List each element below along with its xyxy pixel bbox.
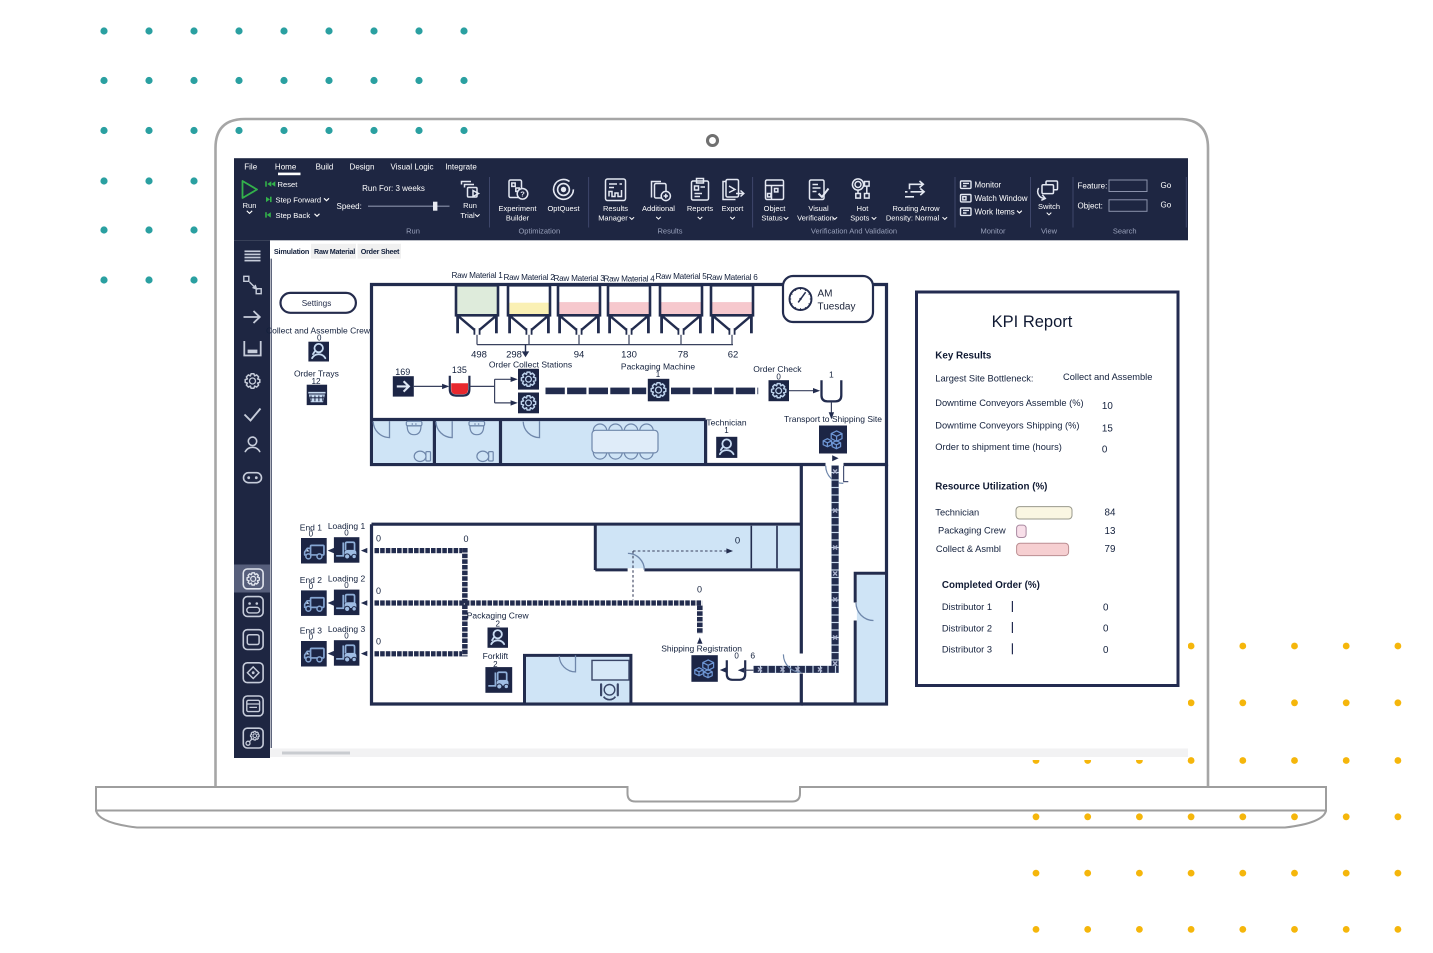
svg-text:Shipping Registration: Shipping Registration — [661, 644, 742, 654]
svg-text:KPI Report: KPI Report — [992, 313, 1073, 331]
svg-text:0: 0 — [735, 536, 740, 547]
svg-text:Packaging Crew: Packaging Crew — [938, 526, 1006, 536]
svg-text:12: 12 — [311, 377, 321, 386]
svg-text:135: 135 — [452, 365, 467, 375]
svg-text:10: 10 — [1102, 401, 1113, 412]
svg-text:0: 0 — [317, 333, 322, 342]
svg-text:Trial: Trial — [460, 211, 475, 220]
svg-text:Export: Export — [722, 204, 745, 213]
svg-text:Raw Material 4: Raw Material 4 — [603, 275, 655, 284]
svg-text:79: 79 — [1105, 544, 1116, 555]
svg-text:Visual Logic: Visual Logic — [391, 162, 434, 171]
svg-text:13: 13 — [1105, 526, 1116, 537]
svg-text:Builder: Builder — [506, 214, 530, 223]
svg-text:Raw Material 3: Raw Material 3 — [553, 274, 605, 283]
svg-text:Largest Site Bottleneck:: Largest Site Bottleneck: — [935, 373, 1033, 383]
svg-text:Distributor 3: Distributor 3 — [942, 645, 992, 655]
svg-text:0: 0 — [309, 633, 314, 642]
svg-text:62: 62 — [728, 350, 739, 361]
svg-text:Raw Material 1: Raw Material 1 — [451, 271, 503, 280]
svg-text:Monitor: Monitor — [975, 180, 1002, 189]
svg-text:0: 0 — [463, 534, 468, 544]
svg-text:Simulation: Simulation — [274, 247, 309, 256]
svg-text:Results: Results — [657, 226, 682, 235]
svg-text:Go: Go — [1161, 181, 1172, 190]
svg-text:View: View — [1041, 226, 1058, 235]
svg-text:Reports: Reports — [687, 204, 714, 213]
svg-text:Order to shipment time (hours): Order to shipment time (hours) — [935, 442, 1062, 452]
svg-text:0: 0 — [344, 581, 349, 590]
svg-text:130: 130 — [621, 350, 637, 361]
svg-text:Run For: 3 weeks: Run For: 3 weeks — [362, 184, 425, 193]
svg-text:Manager: Manager — [598, 214, 628, 223]
svg-text:Work Items: Work Items — [975, 207, 1015, 216]
svg-text:Key Results: Key Results — [935, 351, 992, 362]
svg-text:Tuesday: Tuesday — [818, 302, 856, 313]
svg-text:Switch: Switch — [1038, 202, 1060, 211]
svg-text:169: 169 — [395, 367, 410, 377]
svg-text:Raw Material 5: Raw Material 5 — [655, 272, 707, 281]
svg-text:Object:: Object: — [1078, 201, 1103, 210]
svg-text:Distributor 2: Distributor 2 — [942, 623, 992, 633]
svg-text:Status: Status — [761, 214, 783, 223]
svg-text:Order Sheet: Order Sheet — [361, 247, 400, 256]
svg-text:Collect and Assemble: Collect and Assemble — [1063, 372, 1152, 382]
svg-text:Downtime Conveyors Assemble (%: Downtime Conveyors Assemble (%) — [935, 398, 1083, 408]
svg-text:Step Back: Step Back — [276, 211, 311, 220]
svg-text:0: 0 — [344, 632, 349, 641]
svg-text:Additional: Additional — [642, 204, 675, 213]
svg-text:Speed:: Speed: — [337, 202, 362, 211]
svg-text:Design: Design — [350, 162, 375, 171]
svg-text:Reset: Reset — [278, 180, 299, 189]
svg-text:Results: Results — [603, 204, 628, 213]
svg-text:File: File — [244, 162, 257, 171]
svg-text:0: 0 — [1102, 445, 1108, 456]
svg-text:Monitor: Monitor — [980, 226, 1006, 235]
svg-text:Completed Order (%): Completed Order (%) — [942, 580, 1040, 591]
svg-text:Run: Run — [406, 226, 420, 235]
svg-text:15: 15 — [1102, 423, 1113, 434]
svg-text:Home: Home — [275, 162, 297, 171]
svg-text:84: 84 — [1105, 508, 1116, 519]
svg-text:1: 1 — [656, 370, 661, 379]
svg-text:Step Forward: Step Forward — [276, 195, 322, 204]
svg-text:0: 0 — [344, 529, 349, 538]
svg-text:0: 0 — [697, 584, 702, 594]
svg-text:Routing Arrow: Routing Arrow — [892, 204, 940, 213]
svg-text:Transport to Shipping Site: Transport to Shipping Site — [784, 414, 882, 424]
svg-text:0: 0 — [1103, 624, 1109, 635]
svg-text:Feature:: Feature: — [1078, 182, 1108, 191]
svg-text:0: 0 — [376, 534, 381, 544]
svg-text:0: 0 — [734, 652, 739, 661]
svg-text:0: 0 — [1103, 645, 1109, 656]
svg-text:0: 0 — [1103, 603, 1109, 614]
svg-text:0: 0 — [309, 582, 314, 591]
svg-text:Go: Go — [1161, 201, 1172, 210]
svg-text:Experiment: Experiment — [499, 204, 538, 213]
svg-text:Downtime Conveyors Shipping (%: Downtime Conveyors Shipping (%) — [935, 421, 1079, 431]
svg-text:Hot: Hot — [857, 204, 870, 213]
svg-text:Raw Material: Raw Material — [314, 247, 355, 256]
svg-text:?: ? — [520, 190, 525, 199]
svg-text:Visual: Visual — [808, 204, 829, 213]
svg-text:Density: Normal: Density: Normal — [886, 214, 940, 223]
svg-text:Verification And Validation: Verification And Validation — [811, 226, 897, 235]
svg-text:Run: Run — [243, 201, 257, 210]
svg-text:1: 1 — [829, 370, 834, 380]
svg-text:498: 498 — [471, 350, 487, 361]
svg-text:0: 0 — [776, 372, 781, 381]
svg-text:Integrate: Integrate — [445, 162, 477, 171]
svg-text:Raw Material 6: Raw Material 6 — [706, 273, 758, 282]
svg-text:Run: Run — [463, 201, 477, 210]
svg-text:1: 1 — [724, 426, 729, 435]
svg-text:Build: Build — [316, 162, 334, 171]
svg-text:0: 0 — [376, 637, 381, 647]
svg-text:2: 2 — [495, 619, 500, 628]
svg-text:Search: Search — [1113, 226, 1137, 235]
svg-text:78: 78 — [678, 350, 689, 361]
svg-text:Settings: Settings — [302, 299, 332, 308]
svg-text:0: 0 — [376, 586, 381, 596]
svg-text:Technician: Technician — [935, 507, 979, 517]
svg-text:Spots: Spots — [850, 214, 869, 223]
svg-text:0: 0 — [309, 530, 314, 539]
svg-text:Resource Utilization (%): Resource Utilization (%) — [935, 482, 1047, 493]
svg-text:Watch Window: Watch Window — [975, 194, 1028, 203]
svg-text:94: 94 — [574, 350, 585, 361]
svg-text:OptQuest: OptQuest — [547, 204, 580, 213]
svg-text:Raw Material 2: Raw Material 2 — [503, 273, 555, 282]
svg-text:Verification: Verification — [797, 214, 834, 223]
svg-text:Distributor 1: Distributor 1 — [942, 602, 992, 612]
svg-text:6: 6 — [750, 651, 755, 661]
svg-text:Object: Object — [764, 204, 787, 213]
svg-text:Order Collect Stations: Order Collect Stations — [489, 359, 572, 369]
svg-text:Collect & Asmbl: Collect & Asmbl — [936, 544, 1001, 554]
svg-text:Optimization: Optimization — [518, 226, 560, 235]
svg-text:AM: AM — [818, 289, 833, 300]
